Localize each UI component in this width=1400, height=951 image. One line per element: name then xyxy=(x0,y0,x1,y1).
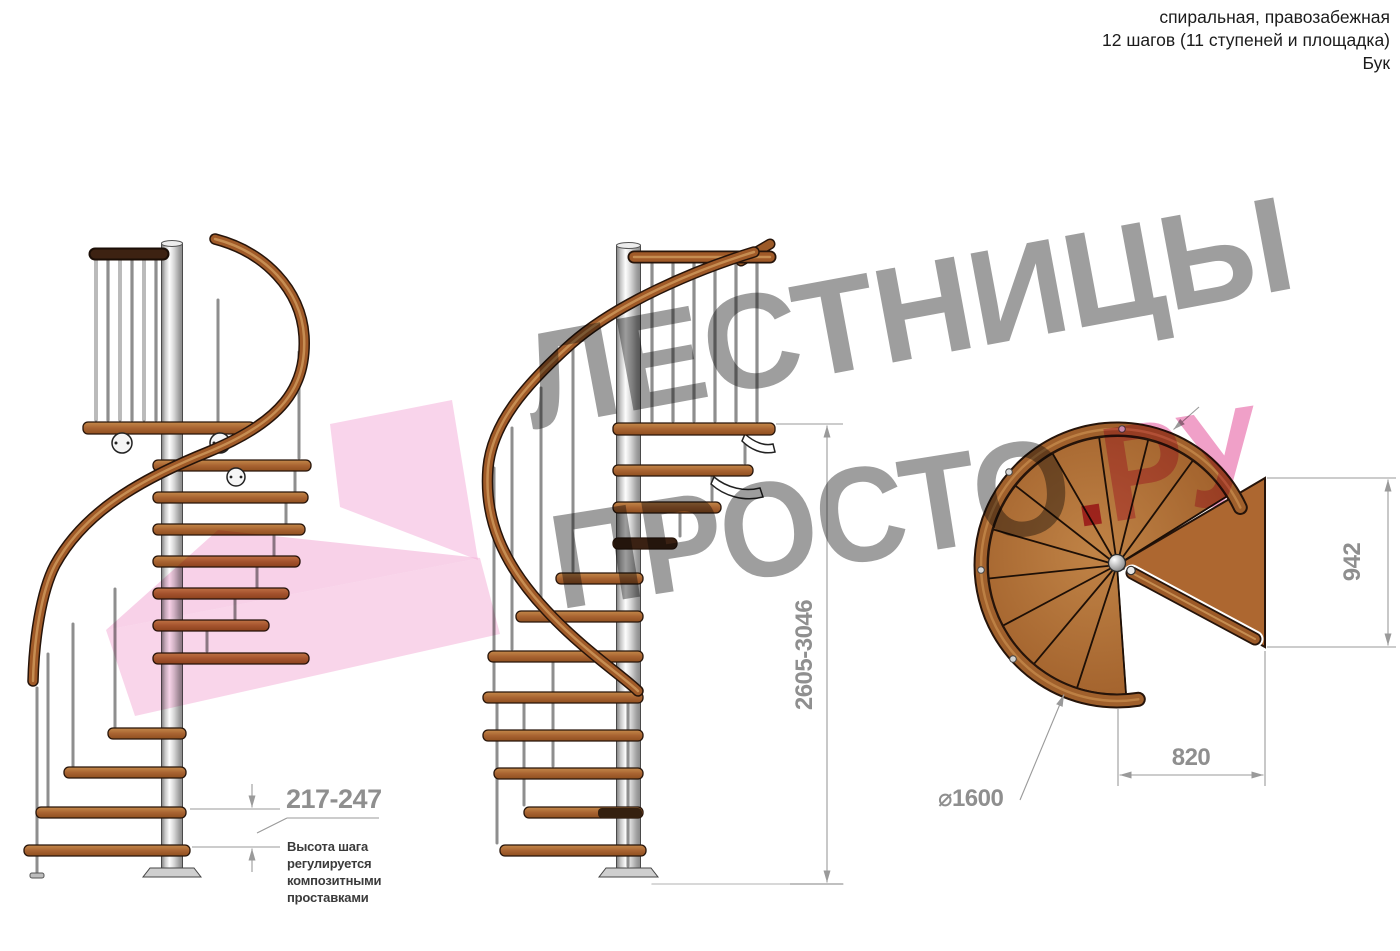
step xyxy=(64,767,186,778)
plan-view xyxy=(978,426,1265,701)
step-shadow xyxy=(598,808,642,818)
step xyxy=(483,730,643,741)
step xyxy=(516,611,643,622)
step xyxy=(153,653,309,664)
baluster-foot xyxy=(30,873,44,878)
platform-width-label: 820 xyxy=(1172,744,1211,771)
step xyxy=(153,492,308,503)
staircase-steps-count: 12 шагов (11 ступеней и площадка) xyxy=(1102,29,1390,52)
handrail-connector xyxy=(1127,566,1135,574)
step xyxy=(613,502,721,513)
staircase-type: спиральная, правозабежная xyxy=(1102,6,1390,29)
step xyxy=(153,524,305,535)
pole-base-flange xyxy=(599,868,658,877)
staircase-material: Бук xyxy=(1102,52,1390,75)
step xyxy=(153,556,300,567)
platform-balusters-highlight xyxy=(96,260,144,420)
side-view-left xyxy=(24,239,311,878)
step xyxy=(613,538,677,549)
step xyxy=(24,845,190,856)
total-height-label: 2605-3046 xyxy=(791,600,818,710)
platform-step xyxy=(613,423,775,435)
pole-top-ball xyxy=(1109,555,1126,572)
step xyxy=(488,651,643,662)
step xyxy=(36,807,186,818)
step-height-label: 217-247 xyxy=(286,784,382,814)
spiral-staircase-drawing-page: { "header": { "line1": "спиральная, прав… xyxy=(0,0,1400,951)
step xyxy=(556,573,643,584)
step xyxy=(500,845,646,856)
diameter-label: ⌀1600 xyxy=(938,785,1003,812)
staircase-drawing-svg: 217-247 2605-3046 942 820 ⌀1600 xyxy=(0,0,1400,951)
side-view-middle xyxy=(483,243,843,885)
step xyxy=(153,620,269,631)
step xyxy=(483,692,643,703)
platform-depth-label: 942 xyxy=(1339,543,1366,582)
title-block: спиральная, правозабежная 12 шагов (11 с… xyxy=(1102,6,1390,75)
step-height-note: Высота шага регулируется композитными пр… xyxy=(287,838,403,906)
step xyxy=(494,768,643,779)
step-balusters-left xyxy=(37,589,115,874)
drawing-stage: 217-247 2605-3046 942 820 ⌀1600 xyxy=(0,0,1400,951)
step xyxy=(108,728,186,739)
platform-step xyxy=(83,422,255,434)
pole-base-flange xyxy=(143,868,201,877)
platform-balusters xyxy=(96,260,156,420)
dimension-platform-depth xyxy=(1267,478,1396,647)
step xyxy=(613,465,753,476)
step xyxy=(153,588,289,599)
